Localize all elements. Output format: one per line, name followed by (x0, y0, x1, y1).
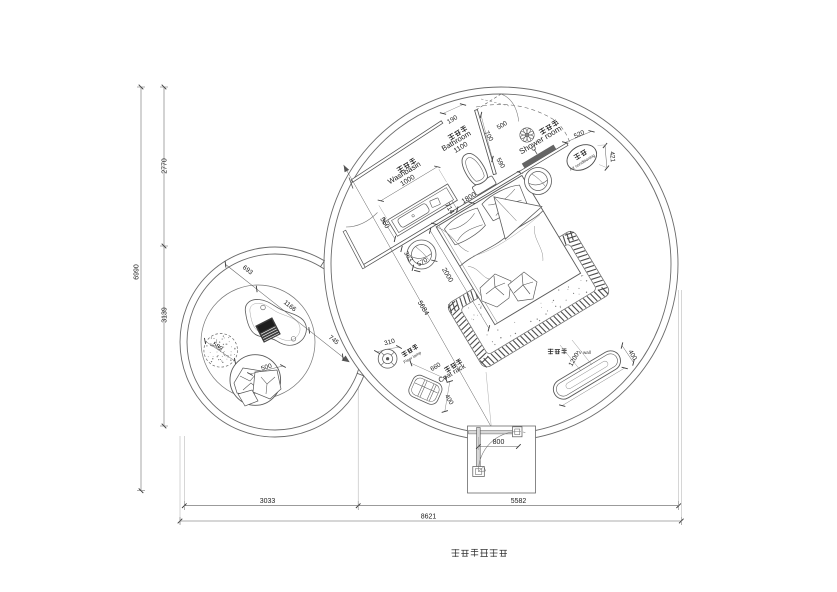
svg-text:3139: 3139 (162, 307, 169, 323)
svg-text:5582: 5582 (511, 498, 527, 505)
svg-text:800: 800 (493, 439, 505, 446)
svg-text:8621: 8621 (421, 514, 437, 521)
svg-text:6990: 6990 (134, 264, 141, 280)
svg-text:421: 421 (608, 151, 616, 163)
svg-text:3033: 3033 (260, 498, 276, 505)
svg-text:2770: 2770 (162, 158, 169, 174)
